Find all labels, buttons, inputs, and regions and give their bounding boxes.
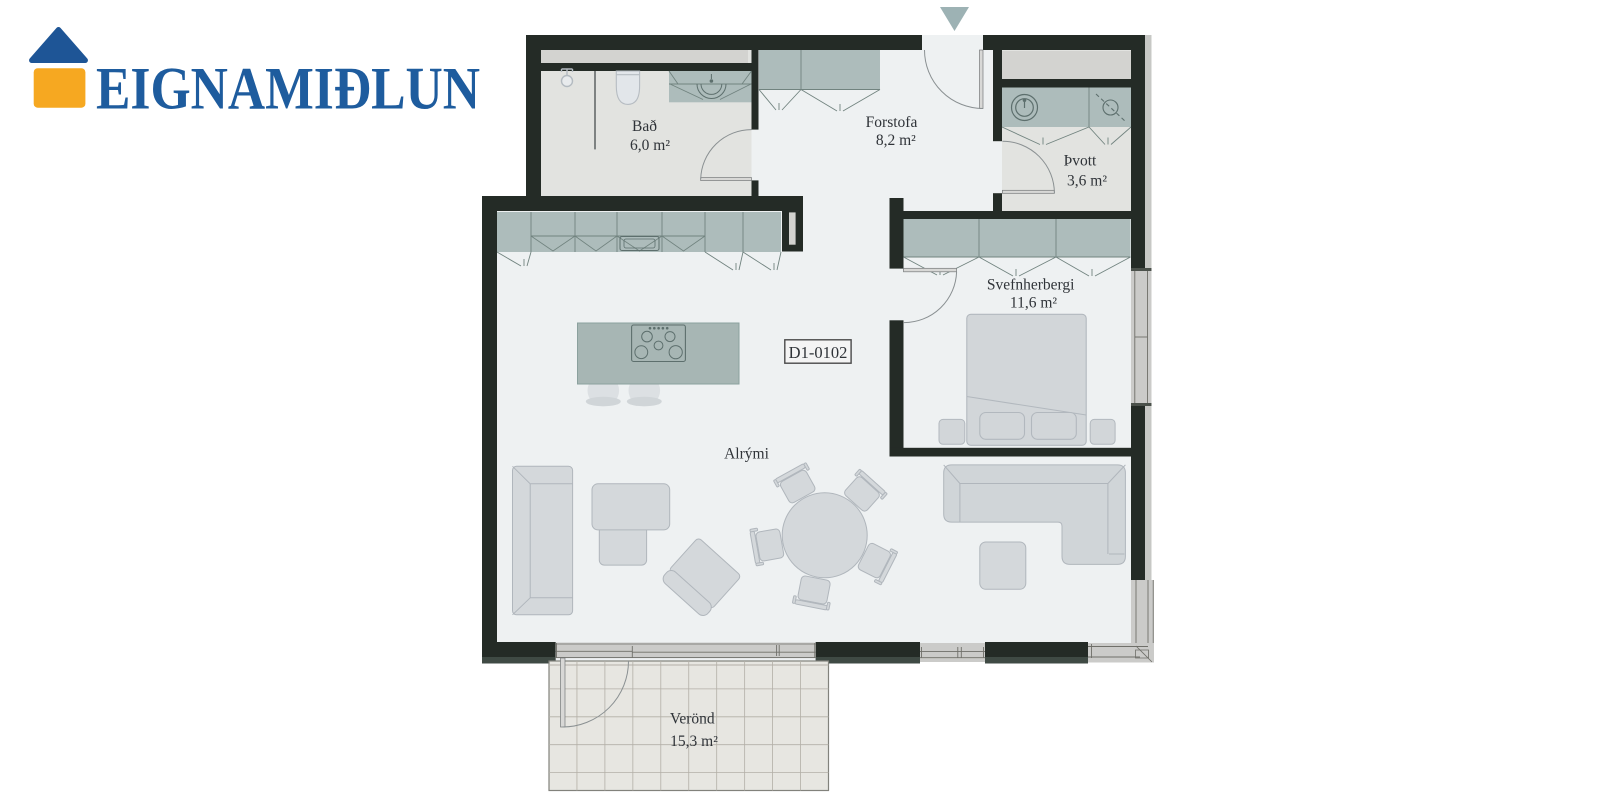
svg-text:6,0 m²: 6,0 m² [630,137,670,154]
svg-text:Forstofa: Forstofa [866,114,918,131]
svg-text:D1-0102: D1-0102 [789,343,848,362]
svg-text:8,2 m²: 8,2 m² [876,132,916,149]
svg-text:11,6 m²: 11,6 m² [1010,295,1057,312]
svg-text:Þvott: Þvott [1064,153,1097,170]
svg-text:Verönd: Verönd [670,711,715,728]
svg-text:EIGNAMIÐLUN: EIGNAMIÐLUN [96,55,480,121]
svg-text:15,3 m²: 15,3 m² [670,733,718,750]
svg-text:Alrými: Alrými [724,445,769,462]
svg-text:Svefnherbergi: Svefnherbergi [987,276,1075,293]
svg-text:Bað: Bað [632,118,657,135]
svg-text:3,6 m²: 3,6 m² [1067,172,1107,189]
